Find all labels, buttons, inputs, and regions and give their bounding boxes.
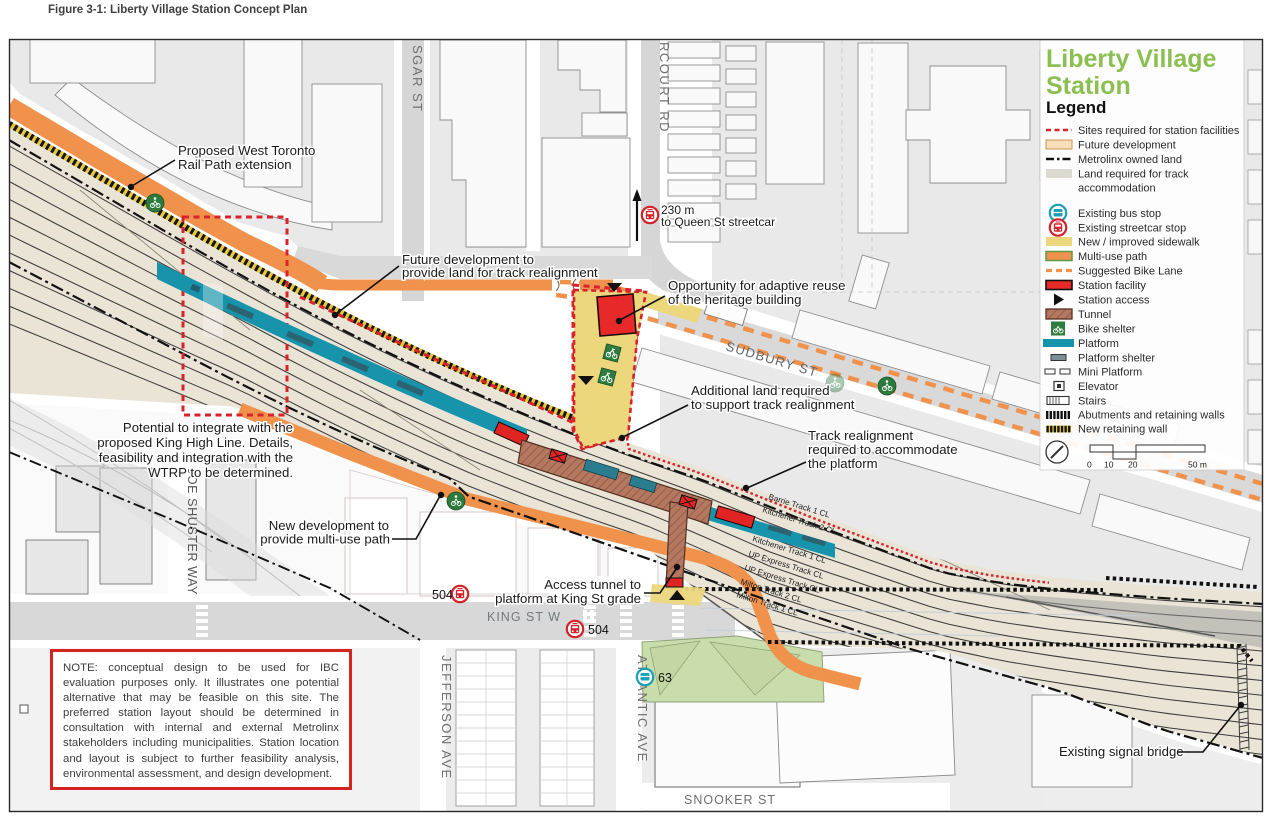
- svg-text:provide multi-use path: provide multi-use path: [260, 532, 390, 547]
- svg-text:of the heritage building: of the heritage building: [668, 292, 801, 307]
- svg-text:the platform: the platform: [808, 456, 878, 471]
- svg-text:WTRP to be determined.: WTRP to be determined.: [148, 465, 293, 480]
- svg-text:Existing signal bridge: Existing signal bridge: [1059, 744, 1184, 759]
- svg-text:SGAR ST: SGAR ST: [410, 45, 425, 113]
- svg-text:Station access: Station access: [1078, 295, 1150, 307]
- svg-text:platform at King St grade: platform at King St grade: [495, 591, 641, 606]
- svg-text:Existing bus stop: Existing bus stop: [1078, 208, 1161, 220]
- svg-text:63: 63: [658, 671, 672, 685]
- svg-text:Platform: Platform: [1078, 338, 1119, 350]
- svg-text:Mini Platform: Mini Platform: [1078, 367, 1142, 379]
- svg-text:Stairs: Stairs: [1078, 396, 1107, 408]
- svg-text:Additional land required: Additional land required: [691, 383, 830, 398]
- svg-text:Station: Station: [1046, 72, 1131, 100]
- svg-text:Track realignment: Track realignment: [808, 428, 913, 443]
- svg-text:Suggested Bike Lane: Suggested Bike Lane: [1078, 266, 1183, 278]
- svg-text:Elevator: Elevator: [1078, 381, 1119, 393]
- svg-text:Figure 3-1: Liberty Village St: Figure 3-1: Liberty Village Station Conc…: [48, 4, 307, 16]
- svg-text:Platform shelter: Platform shelter: [1078, 353, 1155, 365]
- svg-text:504: 504: [588, 623, 609, 637]
- svg-text:Future development: Future development: [1078, 140, 1176, 152]
- svg-text:feasibility and integration wi: feasibility and integration with the: [99, 450, 293, 465]
- svg-text:New retaining wall: New retaining wall: [1078, 424, 1167, 436]
- svg-text:504: 504: [432, 588, 453, 602]
- svg-text:Existing streetcar stop: Existing streetcar stop: [1078, 223, 1186, 235]
- svg-text:Rail Path extension: Rail Path extension: [178, 157, 292, 172]
- svg-text:Station facility: Station facility: [1078, 280, 1146, 292]
- svg-text:SNOOKER ST: SNOOKER ST: [684, 793, 776, 807]
- svg-text:RCOURT RD: RCOURT RD: [657, 42, 672, 133]
- svg-text:Proposed West Toronto: Proposed West Toronto: [178, 143, 315, 158]
- svg-text:0: 0: [1087, 460, 1092, 470]
- svg-text:Bike shelter: Bike shelter: [1078, 324, 1136, 336]
- svg-text:required to accommodate: required to accommodate: [808, 442, 958, 457]
- svg-text:Sites required for station fac: Sites required for station facilities: [1078, 125, 1240, 137]
- svg-text:50 m: 50 m: [1188, 460, 1207, 470]
- svg-text:20: 20: [1128, 460, 1138, 470]
- svg-text:New / improved sidewalk: New / improved sidewalk: [1078, 237, 1200, 249]
- svg-text:JEFFERSON AVE: JEFFERSON AVE: [439, 655, 454, 780]
- svg-text:Tunnel: Tunnel: [1078, 309, 1111, 321]
- svg-text:Multi-use path: Multi-use path: [1078, 251, 1147, 263]
- svg-text:Access tunnel to: Access tunnel to: [544, 577, 641, 592]
- svg-text:Land required for track: Land required for track: [1078, 169, 1189, 181]
- svg-text:KING ST W: KING ST W: [487, 610, 561, 624]
- svg-text:provide land for track realign: provide land for track realignment: [402, 265, 598, 280]
- svg-text:proposed King High Line. Detai: proposed King High Line. Details,: [97, 435, 293, 450]
- svg-text:Opportunity for adaptive reuse: Opportunity for adaptive reuse: [668, 278, 845, 293]
- svg-text:10: 10: [1104, 460, 1114, 470]
- svg-text:JOE SHUSTER WAY: JOE SHUSTER WAY: [185, 468, 199, 595]
- svg-text:Legend: Legend: [1046, 98, 1106, 117]
- svg-text:accommodation: accommodation: [1078, 183, 1156, 195]
- svg-text:Abutments and retaining walls: Abutments and retaining walls: [1078, 410, 1225, 422]
- svg-text:to support track realignment: to support track realignment: [691, 397, 855, 412]
- svg-text:Metrolinx owned land: Metrolinx owned land: [1078, 154, 1182, 166]
- svg-text:Potential to integrate with th: Potential to integrate with the: [123, 420, 293, 435]
- svg-text:Liberty Village: Liberty Village: [1046, 45, 1217, 73]
- svg-text:to Queen St streetcar: to Queen St streetcar: [661, 215, 775, 229]
